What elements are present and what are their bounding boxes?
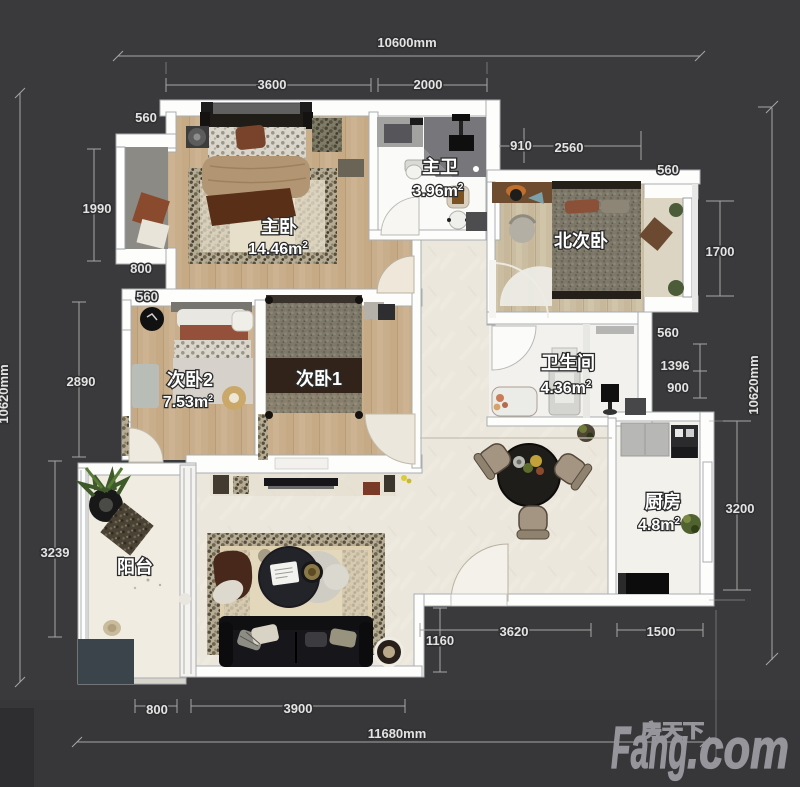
svg-text:800: 800: [146, 702, 168, 717]
svg-text:560: 560: [136, 289, 158, 304]
svg-text:1160: 1160: [426, 633, 454, 648]
svg-text:主卧: 主卧: [261, 216, 297, 237]
svg-text:.com: .com: [687, 717, 789, 780]
svg-text:910: 910: [510, 138, 532, 153]
svg-text:次卧2: 次卧2: [167, 369, 213, 390]
svg-text:560: 560: [657, 325, 679, 340]
svg-text:4.36m2: 4.36m2: [541, 379, 592, 397]
svg-text:10620mm: 10620mm: [0, 364, 11, 423]
svg-text:1396: 1396: [661, 358, 690, 373]
svg-text:11680mm: 11680mm: [368, 726, 427, 741]
svg-text:3600: 3600: [258, 77, 287, 92]
svg-text:800: 800: [130, 261, 152, 276]
svg-text:3900: 3900: [284, 701, 313, 716]
svg-text:900: 900: [667, 380, 689, 395]
svg-text:3.96m2: 3.96m2: [413, 182, 464, 200]
svg-text:10600mm: 10600mm: [377, 35, 436, 50]
svg-text:7.53m2: 7.53m2: [163, 393, 213, 411]
svg-text:10620mm: 10620mm: [746, 355, 761, 414]
svg-text:1500: 1500: [647, 624, 676, 639]
svg-text:2890: 2890: [67, 374, 96, 389]
svg-text:3200: 3200: [726, 501, 755, 516]
svg-text:北次卧: 北次卧: [554, 230, 608, 251]
svg-text:4.8m2: 4.8m2: [638, 516, 680, 534]
svg-text:560: 560: [657, 162, 679, 177]
svg-text:卫生间: 卫生间: [541, 352, 595, 373]
svg-text:厨房: 厨房: [645, 491, 681, 512]
svg-text:560: 560: [135, 110, 157, 125]
svg-text:主卫: 主卫: [422, 156, 458, 177]
svg-text:3620: 3620: [500, 624, 529, 639]
svg-text:2000: 2000: [414, 77, 443, 92]
svg-text:2560: 2560: [555, 140, 584, 155]
svg-text:1990: 1990: [83, 201, 112, 216]
svg-text:3239: 3239: [41, 545, 70, 560]
svg-text:Fang: Fang: [611, 715, 688, 781]
svg-text:14.46m2: 14.46m2: [248, 240, 308, 258]
svg-text:1700: 1700: [706, 244, 735, 259]
svg-text:阳台: 阳台: [117, 556, 153, 577]
svg-text:次卧1: 次卧1: [296, 368, 342, 389]
